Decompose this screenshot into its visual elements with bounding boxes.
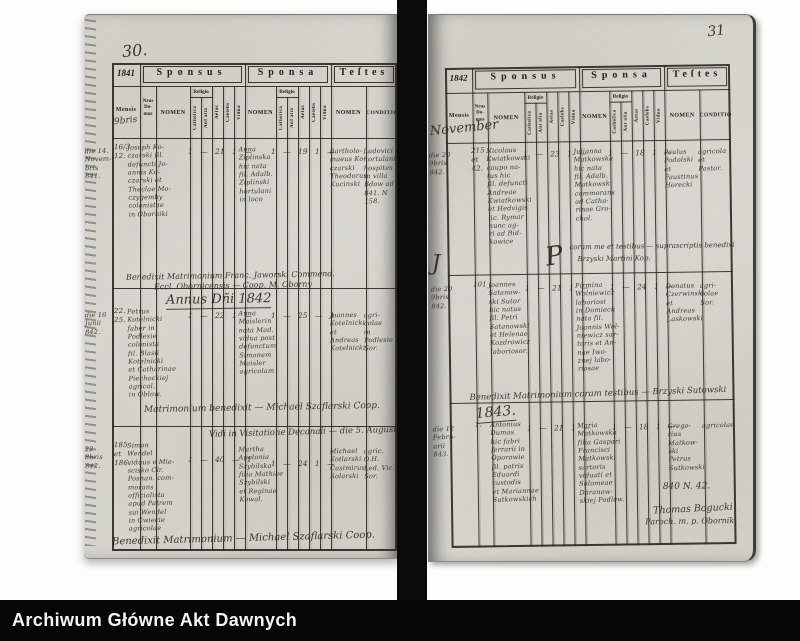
mensis-handwritten-note: November <box>429 117 499 139</box>
header-religio-sponsa: Religio <box>609 93 631 99</box>
archive-caption: Archiwum Główne Akt Dawnych <box>12 600 297 641</box>
header-aut-alia-sponsus: Aut alia <box>535 105 546 140</box>
header-catholica-sponsus: Catholica <box>524 105 535 140</box>
entry-date: 22 8bris 842. <box>85 445 113 470</box>
entry-testes: Bartholo- maeus Ko- czarski Theodorus Ku… <box>330 147 368 189</box>
header-aut-alia-sponsa: Aut alia <box>620 103 631 138</box>
left-register-table: 30. 1841 Sponsus Sponsa Teſtes Mensis Nr… <box>84 15 399 558</box>
entry-sponsa-marks: 1 — 18 1 — <box>612 422 676 432</box>
grid-line <box>653 90 660 545</box>
entry-sponsus-name: Joseph Ko- czarski fil. defuncti Jo- ann… <box>127 142 192 218</box>
header-caelebs-sponsa: Caelebs <box>309 89 320 136</box>
header-catholica-sponsa: Catholica <box>276 99 287 136</box>
parish-signature-cont: Paroch. m. p. Obornik <box>645 516 734 526</box>
header-aut-alia-sponsa: Aut alia <box>287 99 298 136</box>
entry-sponsa-marks: 1 — 24 1 — <box>610 282 674 292</box>
header-sponsus: Sponsus <box>474 70 577 82</box>
header-conditio: CONDITIO <box>700 112 731 118</box>
entry-testes: Paulus Podolski et Faustinus Horecki <box>664 147 702 190</box>
left-page-scan: 30. 1841 Sponsus Sponsa Teſtes Mensis Nr… <box>84 14 399 559</box>
header-vidua-sponsus: Vidua <box>568 94 580 139</box>
header-testes: Teſtes <box>666 68 728 80</box>
benediction-note-2: Benedixit Matrimonium coram testibus — B… <box>469 385 726 403</box>
header-caelebs-sponsus: Caelebs <box>557 94 569 139</box>
header-sponsa: Sponsa <box>581 69 662 81</box>
entry-sponsa-marks: 1 — 25 — 1 <box>271 311 335 320</box>
grid-line <box>201 97 202 551</box>
grid-line <box>190 97 212 98</box>
grid-line <box>472 68 480 548</box>
header-catholica-sponsus: Catholica <box>190 99 201 136</box>
grid-line <box>276 97 298 98</box>
entry-date: die 20 9bris 842. <box>431 285 460 311</box>
year-cell: 1841 <box>113 68 139 78</box>
visitation-note: Vidi in Visitatione Decanali — die 5. Au… <box>209 424 421 440</box>
entry-sponsus-name: Petrus Kotelnicki faber in Podlesie colo… <box>127 306 192 399</box>
book-binding-strap <box>397 0 427 600</box>
grid-line <box>642 90 649 545</box>
header-religio-sponsus: Religio <box>524 95 546 101</box>
header-vidua-sponsa: Vidua <box>653 93 665 138</box>
right-page-scan: 31 1842 Sponsus Sponsa Teſtes Mensis Nru… <box>428 14 756 562</box>
entry-conditio: agri- colae in Podlesie Sor. <box>364 311 397 353</box>
reference-note: 840 N. 42. <box>663 481 711 492</box>
header-aetas-sponsa: Aetas <box>631 93 643 138</box>
entry-sponsus-name: Simon Wendel viduus e Mie- scisko Cir. P… <box>127 440 192 533</box>
entry-sponsus-name: Nicolaus Kwiatkowski caupo na- tus hic f… <box>486 145 547 247</box>
header-caelebs-sponsus: Caelebs <box>223 89 234 136</box>
entry-sponsa-name: Martha Apolonia Szybilska filia Mathiae … <box>238 444 289 503</box>
entry-testes: Joannes Kotelnicki et Andreas Kotelnicki <box>330 311 368 353</box>
benediction-note-cont: Brzyski Martini Kop. <box>578 254 651 263</box>
header-sponsa: Sponsa <box>247 67 329 78</box>
year-cell: 1842 <box>446 73 471 83</box>
grid-line <box>112 86 397 87</box>
page-number: 31 <box>707 22 727 40</box>
right-register-table: 31 1842 Sponsus Sponsa Teſtes Mensis Nru… <box>424 13 757 563</box>
parish-signature: Thomas Bogucki <box>653 502 733 517</box>
entry-conditio: agricolae <box>702 421 734 430</box>
entry-sponsa-name: Maria Matkowska filia Gaspari Francisci … <box>577 420 632 505</box>
entry-testes: Grego- rius Matkow- ski Petrus Sutkowski <box>667 421 706 472</box>
mid-signature: Matrimonium benedixit — Michael Szaflars… <box>144 401 380 415</box>
entry-date: die 20 9bris 842. <box>429 151 458 177</box>
entry-date: die 16 Junii 842. <box>85 311 113 336</box>
entry-testes: Donatus Czerwinski et Andreas Laskowski <box>665 281 703 324</box>
header-nomen-testes: NOMEN <box>331 110 366 116</box>
archive-scan-view: 30. 1841 Sponsus Sponsa Teſtes Mensis Nr… <box>0 0 800 641</box>
header-religio-sponsa: Religio <box>276 89 298 95</box>
mensis-handwritten-note: 9bris <box>114 115 138 127</box>
header-vidua-sponsa: Vidua <box>320 89 331 136</box>
entry-sponsa-marks: 1 — 24 1 — <box>271 459 335 468</box>
entry-date: die 12 Febru- arii 843. <box>433 425 462 459</box>
header-nomen-testes: NOMEN <box>665 112 700 118</box>
entry-conditio: agri- colae Sor. <box>700 281 733 307</box>
header-religio-sponsus: Religio <box>190 89 212 95</box>
header-nomen-sponsa: NOMEN <box>580 114 610 120</box>
entry-conditio: agricola et Pastor. <box>698 147 731 173</box>
header-nomen-sponsa: NOMEN <box>245 110 276 116</box>
header-catholica-sponsa: Catholica <box>609 104 620 139</box>
header-nomen-sponsus: NOMEN <box>156 110 190 116</box>
entry-sponsa-marks: 1 — 18 1 — <box>608 148 672 158</box>
grid-line <box>631 90 638 545</box>
header-aetas-sponsa: Aetas <box>298 89 309 136</box>
paraph-flourish-2: J <box>431 251 440 276</box>
header-aetas-sponsus: Aetas <box>212 89 223 136</box>
header-aut-alia-sponsus: Aut alia <box>201 99 212 136</box>
header-sponsus: Sponsus <box>142 67 241 78</box>
header-caelebs-sponsa: Caelebs <box>642 93 654 138</box>
entry-testes: Michael Kotlarski Casimirus Solarski <box>330 447 368 481</box>
grid-line <box>446 139 731 144</box>
grid-line <box>112 138 397 139</box>
header-mensis: Mensis <box>112 107 140 113</box>
entry-sponsa-name: Firmina Wolniewicz laboriosi in Domiech … <box>575 280 630 373</box>
entry-conditio: agric. O.H. Led. Vic. Sor. <box>364 447 397 481</box>
header-aetas-sponsus: Aetas <box>546 94 558 139</box>
header-nrus-domus: Nrus Do- mus <box>140 99 156 118</box>
header-conditio: CONDITIO <box>366 110 397 116</box>
header-mensis: Mensis <box>446 113 473 119</box>
header-testes: Teſtes <box>333 67 395 78</box>
grid-line <box>557 91 564 546</box>
entry-conditio: Ludovici hortulani hospites in villa Bdo… <box>363 147 396 206</box>
page-number: 30. <box>121 40 148 61</box>
entry-date: die 14. Novem- bris 841. <box>85 147 113 181</box>
archive-caption-bar: Archiwum Główne Akt Dawnych <box>0 600 800 641</box>
grid-line <box>448 271 733 276</box>
grid-line <box>445 89 730 94</box>
header-vidua-sponsus: Vidua <box>234 89 245 136</box>
paraph-flourish: P <box>543 240 565 272</box>
benediction-note: coram me et testibus — suprascriptis ben… <box>569 241 734 251</box>
entry-sponsa-marks: 1 — 19 1 — <box>271 147 335 156</box>
benediction-note-cont: Eccl. Obornicensis — Coop. M. Oborny <box>154 280 312 292</box>
